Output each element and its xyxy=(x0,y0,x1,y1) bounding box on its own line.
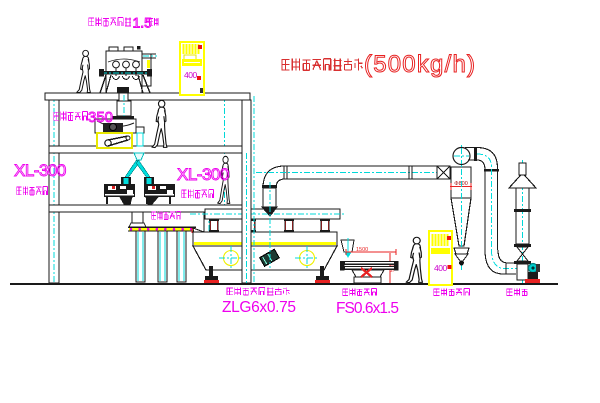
svg-text:(500kg/h): (500kg/h) xyxy=(364,51,475,78)
svg-text:400: 400 xyxy=(184,70,197,80)
svg-text:XL-300: XL-300 xyxy=(14,161,66,180)
svg-text:400: 400 xyxy=(434,263,447,273)
svg-text:FS0.6x1.5: FS0.6x1.5 xyxy=(336,300,399,317)
svg-text:ZLG6x0.75: ZLG6x0.75 xyxy=(222,299,296,316)
svg-text:1500: 1500 xyxy=(356,247,368,253)
svg-text:XL-300: XL-300 xyxy=(177,165,229,184)
svg-text:350: 350 xyxy=(88,109,113,126)
